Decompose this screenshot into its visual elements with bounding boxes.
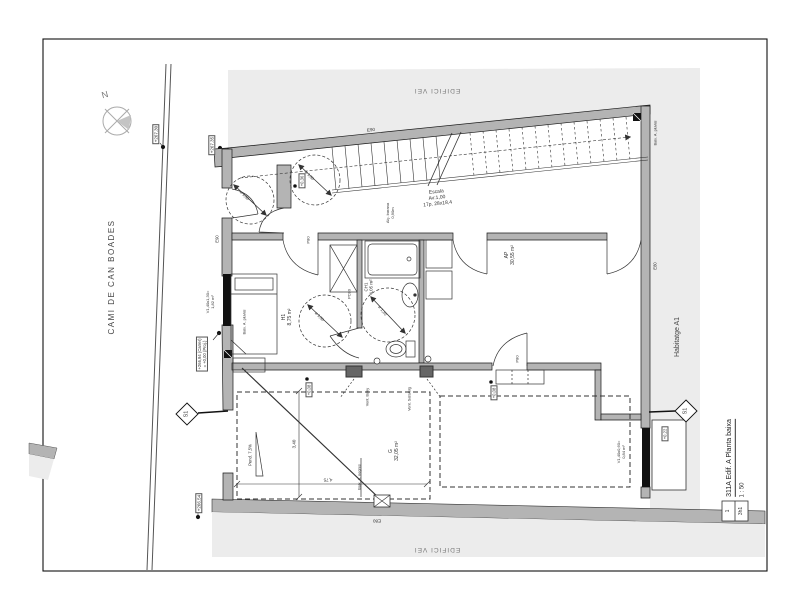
wall-interior-top-1 bbox=[232, 233, 283, 240]
doors bbox=[232, 189, 641, 384]
titleblock-title: 311A Edif. A Planta baixa bbox=[726, 419, 736, 497]
bed bbox=[231, 274, 277, 372]
toilet bbox=[386, 341, 415, 357]
wall-bath-left bbox=[357, 240, 362, 328]
north-compass-icon bbox=[103, 107, 131, 135]
door-tag-bathroom: PC80 bbox=[348, 289, 353, 299]
vent-box-bathroom bbox=[346, 366, 362, 377]
door-living-right bbox=[607, 240, 641, 274]
plumbing-pluvial-rear: Baix. A. pluvial bbox=[654, 121, 659, 146]
wall-left-2 bbox=[222, 218, 232, 276]
floor-plan-drawing bbox=[0, 0, 800, 600]
room-label-living: AP 30,55 m² bbox=[504, 245, 516, 265]
section-label-right: S1 bbox=[683, 408, 690, 415]
laundry-units bbox=[426, 240, 452, 299]
door-bedroom bbox=[283, 240, 318, 275]
window-street bbox=[223, 274, 231, 326]
dimension-lines bbox=[234, 388, 430, 500]
stair-railing-label: Alç. barana 0,90m bbox=[386, 203, 396, 223]
level-garage-right: +0,08 bbox=[490, 386, 497, 401]
section-markers bbox=[176, 400, 697, 425]
wall-tag-top: E90 bbox=[367, 127, 376, 133]
door-tag-bedroom: P80 bbox=[307, 236, 312, 243]
section-label-left: S1 bbox=[184, 411, 191, 418]
vent-label-bathroom: Vent. Bany bbox=[366, 388, 371, 406]
door-tag-garage: P80 bbox=[516, 355, 521, 362]
vestibule-pillar bbox=[277, 165, 291, 208]
vent-box-laundry bbox=[420, 366, 433, 377]
wall-interior-top-2 bbox=[318, 233, 453, 240]
dim-garage-width: 4,75 bbox=[324, 477, 333, 482]
sink bbox=[402, 283, 418, 307]
wall-left-3 bbox=[222, 325, 233, 410]
door-garage bbox=[493, 333, 527, 366]
dim-garage-depth: 3,40 bbox=[291, 440, 296, 449]
wall-tag-bottom: E80 bbox=[373, 518, 381, 523]
titleblock-sheet: 1 bbox=[725, 510, 731, 513]
wall-tag-left: E90 bbox=[214, 235, 219, 242]
window-rear bbox=[642, 428, 650, 487]
street-name: CAMI DE CAN BOADES bbox=[107, 219, 117, 334]
shaft bbox=[330, 245, 357, 292]
door-bathroom bbox=[330, 328, 359, 358]
floor-plan-sheet: CAMI DE CAN BOADES N EDIFICI VEI EDIFICI… bbox=[0, 0, 800, 600]
titleblock-ref: 3h1 bbox=[738, 507, 744, 515]
room-label-bathroom: CH1 4,05 m² bbox=[364, 279, 375, 294]
garage-dashed-outline-right bbox=[440, 396, 630, 487]
garage-dashed-outline-left bbox=[237, 392, 430, 499]
room-label-bedroom: H1 8,75 m² bbox=[281, 309, 293, 326]
neighbor-label-bottom: EDIFICI VEI bbox=[414, 545, 460, 553]
elevation-entry: +266,94 (Carrer) = +0,00 (Proj.) bbox=[196, 336, 208, 371]
elevation-driveway: +266.54 bbox=[195, 493, 202, 513]
door-step bbox=[496, 370, 544, 384]
bathtub bbox=[365, 241, 420, 278]
ramp-symbol bbox=[256, 432, 263, 476]
elevation-road-upper: +267.30 bbox=[152, 124, 159, 144]
plumbing-sewage: Baix. A. negres bbox=[358, 464, 363, 490]
wall-left-1 bbox=[222, 149, 232, 188]
wall-interior-bottom-2 bbox=[527, 363, 601, 370]
wall-interior-top-3 bbox=[487, 233, 607, 240]
door-living-left bbox=[453, 240, 487, 274]
vent-label-laundry: Vent. Safareig bbox=[408, 387, 413, 411]
unit-label: Habitatge A1 bbox=[674, 317, 682, 357]
room-label-garage: G 32,05 m² bbox=[388, 441, 400, 461]
window-tag-rear: V1,40x0,60= 0,84 m² bbox=[617, 441, 627, 464]
garage-elements bbox=[237, 356, 630, 507]
ramp-slope-label: Pend. 7,5% bbox=[247, 444, 252, 466]
wall-right bbox=[641, 106, 650, 428]
window-tag-street: V1,40x1,30= 1,82 m² bbox=[206, 291, 216, 314]
building-walls bbox=[214, 105, 650, 500]
level-rear-porch: +0,22 bbox=[661, 427, 668, 442]
stair-label: Escala Av:1,00 17p. 28x18,4 bbox=[422, 188, 453, 209]
wall-tag-right: E80 bbox=[652, 262, 657, 269]
plumbing-pluvial-street: Baix. A. pluvial bbox=[243, 310, 248, 335]
level-stair-landing: +0,36 bbox=[298, 174, 305, 189]
neighbor-label-top: EDIFICI VEI bbox=[414, 86, 460, 94]
rear-porch bbox=[652, 420, 686, 490]
level-garage-left: +0,08 bbox=[305, 383, 312, 398]
wall-left-4 bbox=[223, 473, 233, 500]
elevation-road-lower: +267.35 bbox=[208, 135, 215, 155]
titleblock-scale: 1 : 50 bbox=[739, 482, 746, 497]
